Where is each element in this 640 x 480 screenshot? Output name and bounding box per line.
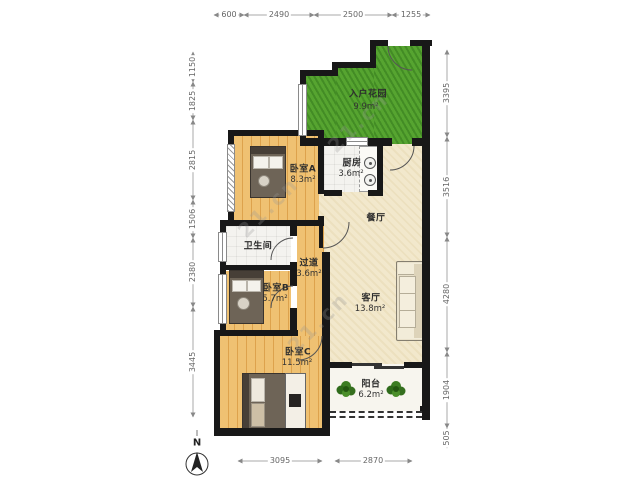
dim-top-3: 2500	[341, 11, 365, 19]
label-garden-name: 入户花园	[349, 87, 387, 100]
dim-right-3: 4280	[443, 282, 451, 306]
floor-plan-canvas: 入户花园 9.9m² 卧室A 8.3m² 厨房 3.6m² 餐厅 卫生间 过道 …	[0, 0, 640, 480]
label-bedroom-a-area: 8.3m²	[290, 175, 315, 185]
dim-bottom-1: 3095	[268, 457, 292, 465]
label-living-area: 13.8m²	[355, 304, 386, 314]
dimension-lines	[193, 15, 447, 461]
plant-icon	[387, 381, 406, 397]
plan-linework	[0, 0, 640, 480]
door-arc-bathroom	[271, 238, 293, 260]
label-hallway-name: 过道	[299, 256, 318, 269]
dim-top-2: 2490	[267, 11, 291, 19]
compass-north-label: N	[193, 438, 201, 449]
dim-top-4: 1255	[399, 11, 423, 19]
label-dining-name: 餐厅	[366, 211, 385, 224]
label-garden-area: 9.9m²	[353, 102, 378, 112]
door-arc-bedroom-a	[323, 222, 349, 248]
dim-left-2: 1825	[189, 89, 197, 113]
door-arc-entry	[388, 46, 412, 70]
dim-right-5: 505	[443, 428, 451, 447]
plant-icon	[337, 381, 356, 397]
label-bathroom-name: 卫生间	[244, 239, 273, 252]
label-hallway-area: 3.6m²	[296, 269, 321, 279]
label-bedroom-c-area: 11.5m²	[282, 358, 313, 368]
label-kitchen-name: 厨房	[342, 156, 361, 169]
dim-right-2: 3516	[443, 175, 451, 199]
label-bedroom-b-area: 5.7m²	[262, 294, 287, 304]
door-arc-garden-dining	[390, 146, 414, 170]
dim-left-3: 2815	[189, 148, 197, 172]
dim-left-4: 1506	[189, 207, 197, 231]
label-balcony-area: 6.2m²	[358, 390, 383, 400]
dim-left-5: 2380	[189, 260, 197, 284]
label-living-name: 客厅	[361, 291, 380, 304]
label-kitchen-area: 3.6m²	[338, 169, 363, 179]
dim-right-1: 3395	[443, 81, 451, 105]
label-balcony-name: 阳台	[361, 377, 380, 390]
label-bedroom-c-name: 卧室C	[285, 345, 311, 358]
dim-left-6: 3445	[189, 350, 197, 374]
label-bedroom-a-name: 卧室A	[290, 162, 316, 175]
dim-right-4: 1904	[443, 378, 451, 402]
dim-bottom-2: 2870	[361, 457, 385, 465]
dim-left-1: 1150	[189, 55, 197, 79]
door-arcs	[271, 46, 414, 360]
compass-needle	[191, 452, 203, 472]
dim-top-1: 600	[219, 11, 238, 19]
label-bedroom-b-name: 卧室B	[263, 281, 289, 294]
